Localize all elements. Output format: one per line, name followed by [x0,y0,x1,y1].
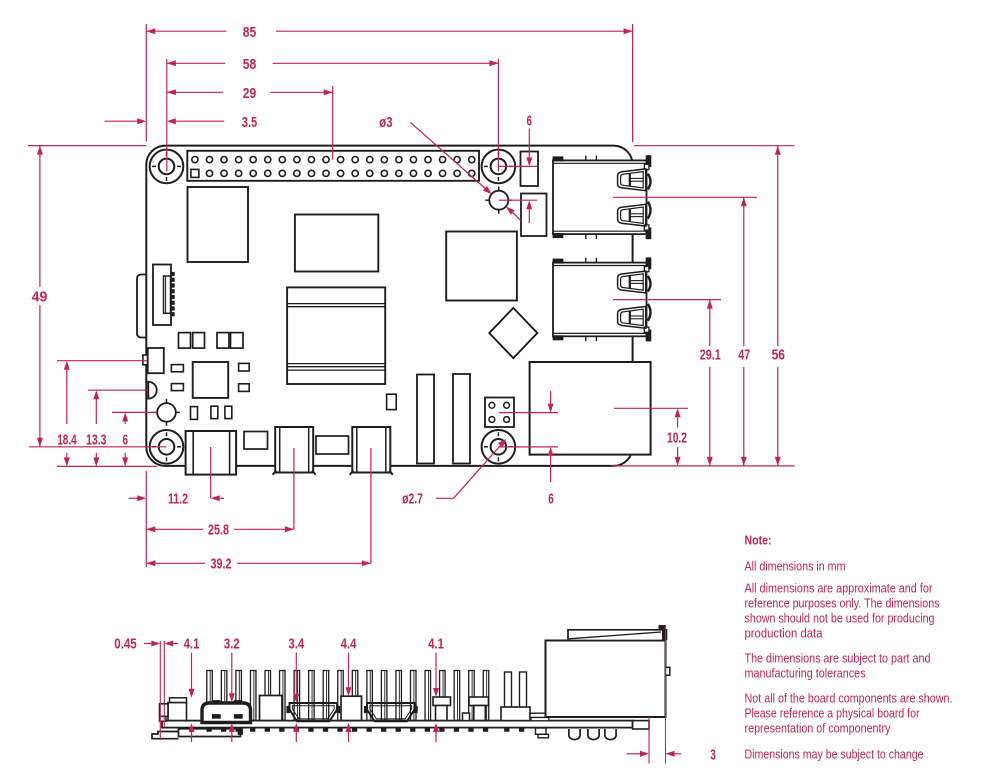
svg-text:13.3: 13.3 [86,431,106,448]
svg-text:4.1: 4.1 [428,635,444,652]
svg-text:ø2.7: ø2.7 [402,490,423,507]
svg-text:Note:: Note: [745,533,772,548]
svg-text:6: 6 [122,431,128,448]
svg-text:85: 85 [243,24,256,41]
svg-text:production data: production data [745,626,824,641]
svg-text:0.45: 0.45 [114,635,136,652]
svg-text:Dimensions may be subject to c: Dimensions may be subject to change [745,747,924,762]
svg-text:11.2: 11.2 [168,490,188,507]
svg-text:shown should not be used for p: shown should not be used for producing [745,611,935,626]
svg-text:reference purposes only. The d: reference purposes only. The dimensions [745,596,940,611]
svg-text:4.1: 4.1 [184,635,200,652]
svg-text:3: 3 [710,746,716,763]
svg-text:3.2: 3.2 [224,635,240,652]
svg-text:29.1: 29.1 [700,346,721,363]
svg-text:3.5: 3.5 [242,114,257,131]
svg-text:39.2: 39.2 [211,555,232,572]
svg-text:29: 29 [243,85,256,102]
svg-text:All dimensions are approximate: All dimensions are approximate and for [745,581,934,596]
svg-text:58: 58 [243,56,256,73]
svg-text:representation of componentry: representation of componentry [745,721,891,736]
svg-text:49: 49 [32,289,48,306]
svg-text:manufacturing tolerances: manufacturing tolerances [745,666,866,681]
svg-text:4.4: 4.4 [341,635,357,652]
svg-text:3.4: 3.4 [288,635,304,652]
svg-text:6: 6 [527,113,533,130]
svg-text:The dimensions are subject to: The dimensions are subject to part and [745,651,931,666]
svg-text:56: 56 [772,346,785,363]
svg-text:47: 47 [738,346,750,363]
svg-text:25.8: 25.8 [208,521,229,538]
svg-text:ø3: ø3 [379,114,392,131]
svg-text:10.2: 10.2 [667,429,687,446]
svg-text:Please reference a physical bo: Please reference a physical board for [745,706,921,721]
svg-text:Not all of the board component: Not all of the board components are show… [745,691,953,706]
svg-text:All dimensions in mm: All dimensions in mm [745,559,846,574]
svg-text:18.4: 18.4 [57,431,77,448]
svg-text:6: 6 [548,490,554,507]
